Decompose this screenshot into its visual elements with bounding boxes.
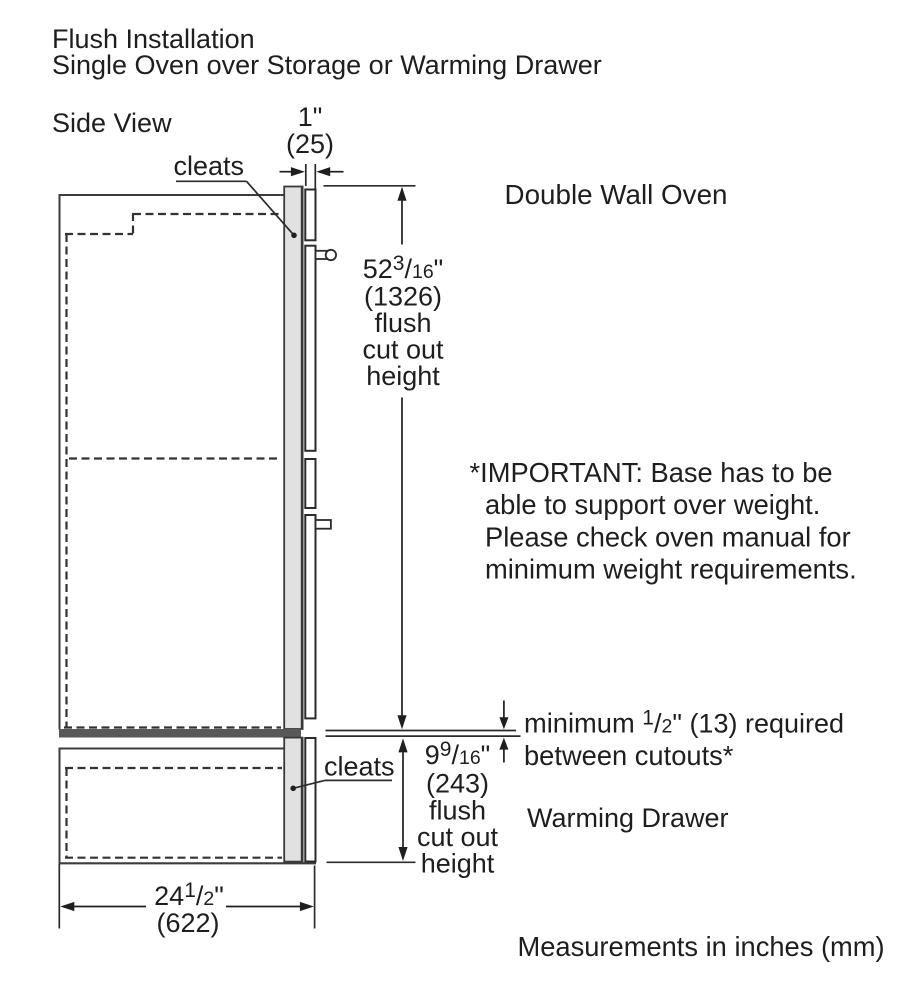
svg-text:cut out: cut out: [417, 822, 499, 852]
svg-text:Double Wall Oven: Double Wall Oven: [505, 179, 728, 210]
svg-text:Please check oven manual for: Please check oven manual for: [485, 521, 851, 552]
svg-text:(25): (25): [286, 129, 334, 159]
svg-text:523/16": 523/16": [363, 252, 444, 284]
svg-text:(243): (243): [426, 769, 489, 799]
svg-text:*IMPORTANT: Base has to be: *IMPORTANT: Base has to be: [470, 457, 833, 488]
svg-text:flush: flush: [429, 796, 486, 826]
svg-text:Side View: Side View: [52, 108, 172, 138]
svg-text:Measurements in inches (mm): Measurements in inches (mm): [518, 931, 885, 962]
svg-text:cleats: cleats: [174, 151, 245, 181]
svg-text:height: height: [421, 849, 495, 879]
svg-text:cleats: cleats: [324, 752, 395, 782]
svg-text:between cutouts*: between cutouts*: [524, 740, 734, 771]
svg-text:cut out: cut out: [362, 335, 444, 365]
svg-text:minimum weight requirements.: minimum weight requirements.: [485, 553, 857, 584]
svg-text:241/2": 241/2": [154, 879, 224, 911]
svg-text:(1326): (1326): [364, 282, 442, 312]
svg-text:99/16": 99/16": [425, 738, 491, 770]
svg-text:1": 1": [298, 102, 323, 132]
svg-text:(622): (622): [156, 908, 219, 938]
svg-text:minimum 1/2" (13) required: minimum 1/2" (13) required: [524, 707, 844, 739]
svg-text:height: height: [366, 361, 440, 391]
svg-text:flush: flush: [374, 308, 431, 338]
svg-text:able to support over weight.: able to support over weight.: [485, 489, 820, 520]
svg-text:Warming Drawer: Warming Drawer: [527, 803, 729, 833]
svg-text:Single Oven over Storage or Wa: Single Oven over Storage or Warming Draw…: [52, 50, 602, 80]
